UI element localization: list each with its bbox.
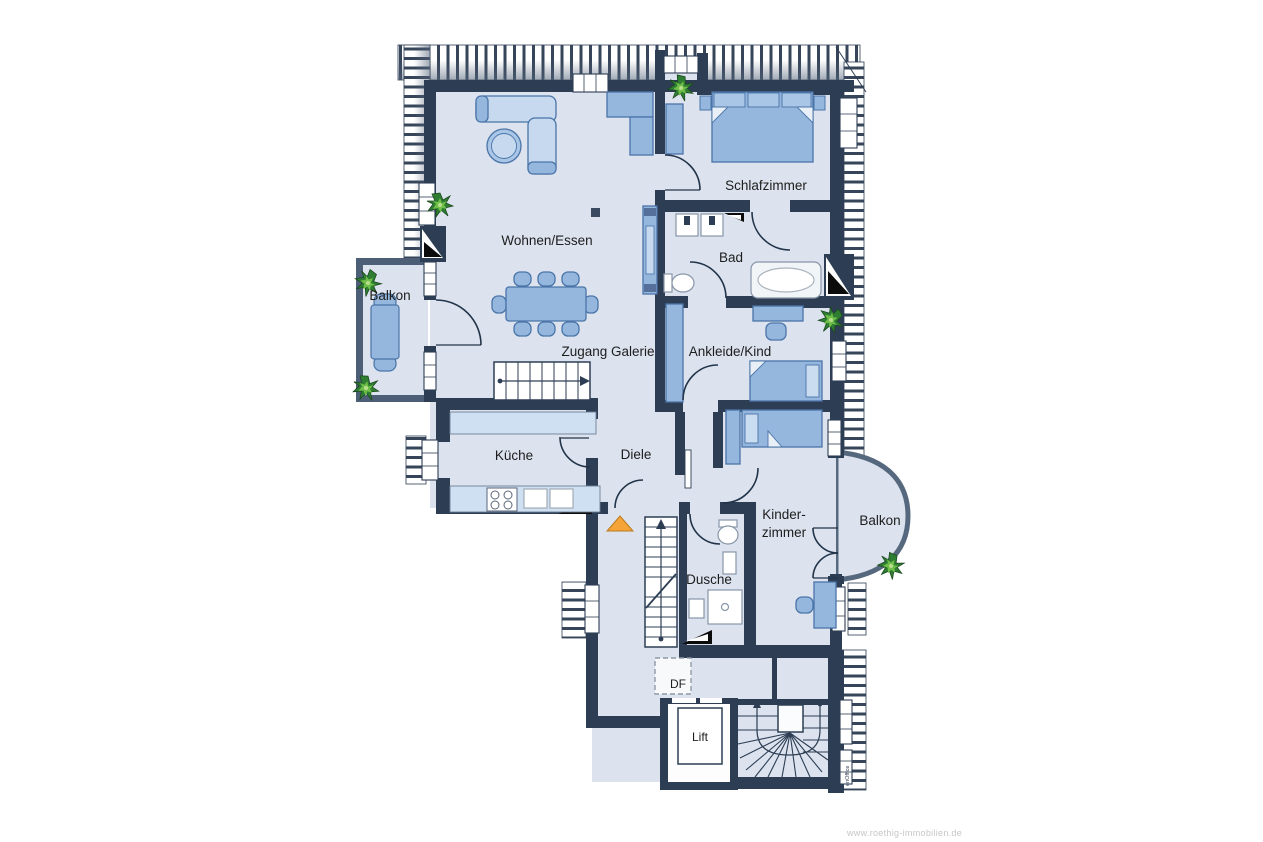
window-stairwell-right-upper bbox=[840, 700, 852, 744]
dormer-wedge-left bbox=[420, 226, 446, 262]
bed-ankleide bbox=[750, 361, 822, 401]
window-corridor-left bbox=[585, 585, 599, 633]
galerie-parapet bbox=[685, 450, 691, 488]
label-lift: Lift bbox=[692, 730, 709, 744]
label-kinderzimmer-2: zimmer bbox=[762, 525, 807, 540]
label-schlafzimmer: Schlafzimmer bbox=[725, 178, 807, 193]
stairs-zugang-galerie bbox=[494, 362, 590, 400]
window-kinderzimmer-right-upper bbox=[828, 420, 841, 456]
stairs-ladder bbox=[645, 517, 677, 647]
furniture-balcony-left bbox=[371, 294, 399, 371]
floor-plan-drawing: Wohnen/Essen Schlafzimmer Bad Balkon Zug… bbox=[0, 0, 1263, 842]
shower-tray bbox=[708, 590, 742, 624]
tv-board bbox=[643, 206, 657, 294]
column bbox=[591, 208, 600, 217]
window-top-living bbox=[573, 74, 608, 92]
window-schlafzimmer-right bbox=[840, 98, 857, 148]
spiral-newel bbox=[778, 705, 803, 732]
wardrobe-kinderzimmer bbox=[726, 410, 740, 464]
label-bad: Bad bbox=[719, 250, 743, 265]
label-diele: Diele bbox=[621, 447, 652, 462]
balcony-table bbox=[371, 305, 399, 359]
floor-plan: Wohnen/Essen Schlafzimmer Bad Balkon Zug… bbox=[0, 0, 1263, 842]
window-balcony-wall-lower bbox=[424, 352, 436, 390]
counter-top bbox=[450, 412, 596, 434]
dormer-wedge-bad-right bbox=[824, 254, 854, 300]
toilet-bad bbox=[664, 274, 694, 292]
toilet-dusche bbox=[718, 520, 738, 544]
label-zugang-galerie: Zugang Galerie bbox=[561, 344, 654, 359]
bed-kinderzimmer bbox=[742, 410, 822, 447]
label-balkon-rechts: Balkon bbox=[859, 513, 900, 528]
bathtub bbox=[751, 262, 821, 298]
label-wohnen-essen: Wohnen/Essen bbox=[501, 233, 592, 248]
label-balkon-links: Balkon bbox=[369, 288, 410, 303]
window-ankleide-right bbox=[832, 341, 846, 381]
watermark: www.roethig-immobilien.de bbox=[846, 828, 962, 838]
label-ankleide-kind: Ankleide/Kind bbox=[689, 344, 772, 359]
window-dormer-vestibule bbox=[664, 56, 698, 73]
label-df: DF bbox=[670, 677, 686, 691]
wardrobe bbox=[666, 104, 683, 154]
label-kueche: Küche bbox=[495, 448, 533, 463]
software-logo: enOffice bbox=[845, 766, 851, 786]
label-kinderzimmer-1: Kinder- bbox=[762, 507, 806, 522]
window-balcony-wall-upper bbox=[424, 262, 436, 296]
wall-cabinet bbox=[723, 552, 736, 574]
stove bbox=[487, 488, 517, 511]
label-dusche: Dusche bbox=[686, 572, 732, 587]
washbasin-1 bbox=[676, 214, 698, 236]
double-bed bbox=[700, 92, 825, 162]
coffee-table bbox=[487, 129, 521, 163]
wardrobe-ankleide bbox=[666, 304, 683, 402]
washbasin-2 bbox=[701, 214, 723, 236]
window-kitchen-left bbox=[422, 440, 438, 480]
shower-sink bbox=[689, 599, 704, 618]
